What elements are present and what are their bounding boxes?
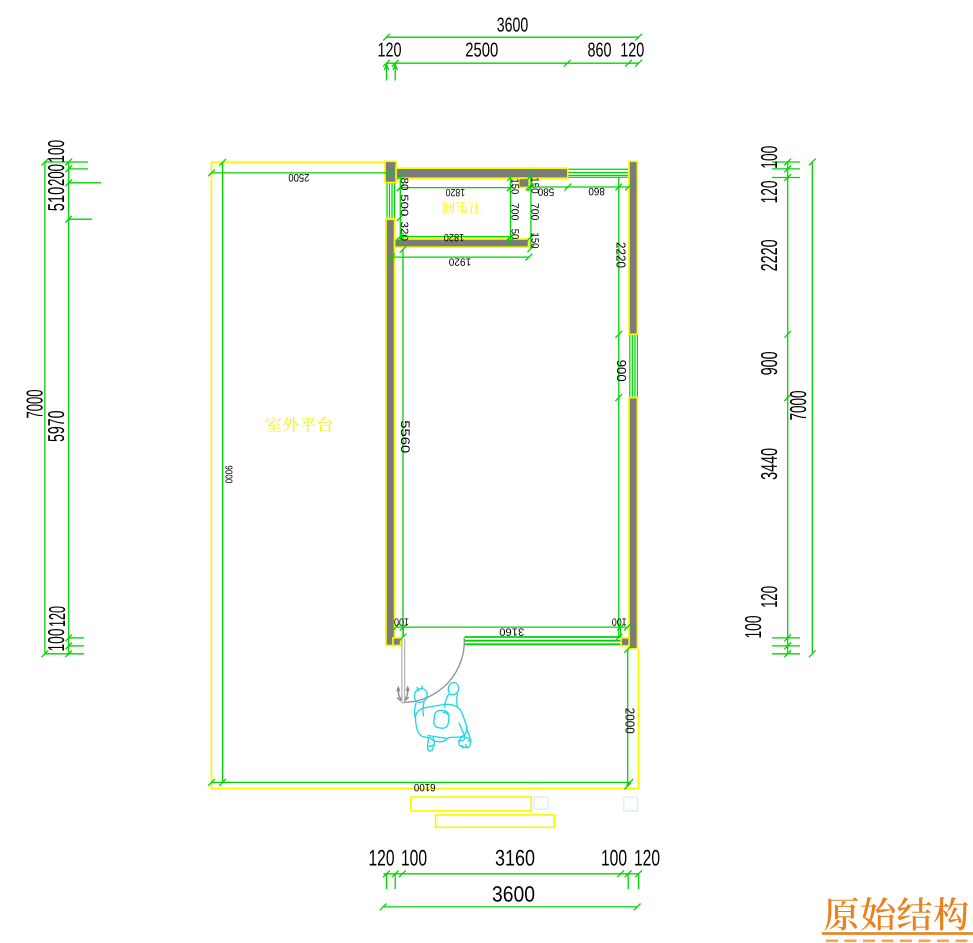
svg-text:100: 100 [612, 616, 627, 628]
svg-text:1820: 1820 [446, 186, 466, 198]
svg-text:80: 80 [398, 178, 410, 191]
svg-text:7000: 7000 [785, 391, 811, 421]
svg-text:1820: 1820 [444, 231, 465, 243]
svg-text:5970: 5970 [43, 411, 69, 443]
svg-text:100: 100 [401, 846, 427, 871]
svg-text:860: 860 [588, 39, 612, 61]
svg-text:3440: 3440 [756, 448, 782, 480]
svg-text:200: 200 [43, 164, 69, 186]
svg-text:100: 100 [756, 146, 782, 169]
svg-text:120: 120 [620, 39, 644, 61]
svg-text:100: 100 [601, 846, 627, 871]
svg-text:510: 510 [43, 187, 69, 212]
svg-text:100: 100 [394, 615, 409, 627]
svg-text:150: 150 [508, 178, 520, 194]
svg-text:9000: 9000 [222, 465, 233, 483]
svg-text:120: 120 [756, 180, 782, 203]
svg-text:120: 120 [634, 846, 660, 871]
svg-text:3600: 3600 [492, 881, 535, 906]
svg-text:900: 900 [614, 360, 629, 382]
svg-text:6100: 6100 [414, 781, 436, 793]
svg-text:2220: 2220 [613, 242, 628, 268]
svg-text:3160: 3160 [499, 625, 524, 637]
svg-text:700: 700 [529, 203, 541, 221]
svg-text:320: 320 [398, 221, 410, 241]
svg-text:100: 100 [43, 140, 69, 163]
svg-text:120: 120 [44, 606, 70, 627]
svg-text:580: 580 [538, 185, 555, 197]
svg-text:860: 860 [588, 185, 605, 197]
svg-text:120: 120 [756, 586, 782, 608]
svg-text:120: 120 [369, 846, 395, 871]
svg-text:3160: 3160 [495, 846, 535, 871]
svg-text:2220: 2220 [756, 239, 782, 271]
svg-text:2000: 2000 [623, 708, 638, 734]
svg-text:700: 700 [508, 203, 520, 221]
svg-text:3600: 3600 [497, 14, 529, 36]
svg-text:5560: 5560 [398, 420, 412, 453]
svg-text:500: 500 [398, 194, 410, 216]
svg-text:150: 150 [529, 233, 541, 249]
svg-text:1920: 1920 [449, 256, 472, 268]
svg-text:120: 120 [378, 39, 402, 61]
svg-text:100: 100 [43, 629, 69, 652]
svg-text:900: 900 [756, 351, 782, 375]
svg-text:100: 100 [740, 616, 766, 639]
svg-text:2500: 2500 [288, 171, 309, 183]
svg-text:2500: 2500 [465, 39, 498, 61]
